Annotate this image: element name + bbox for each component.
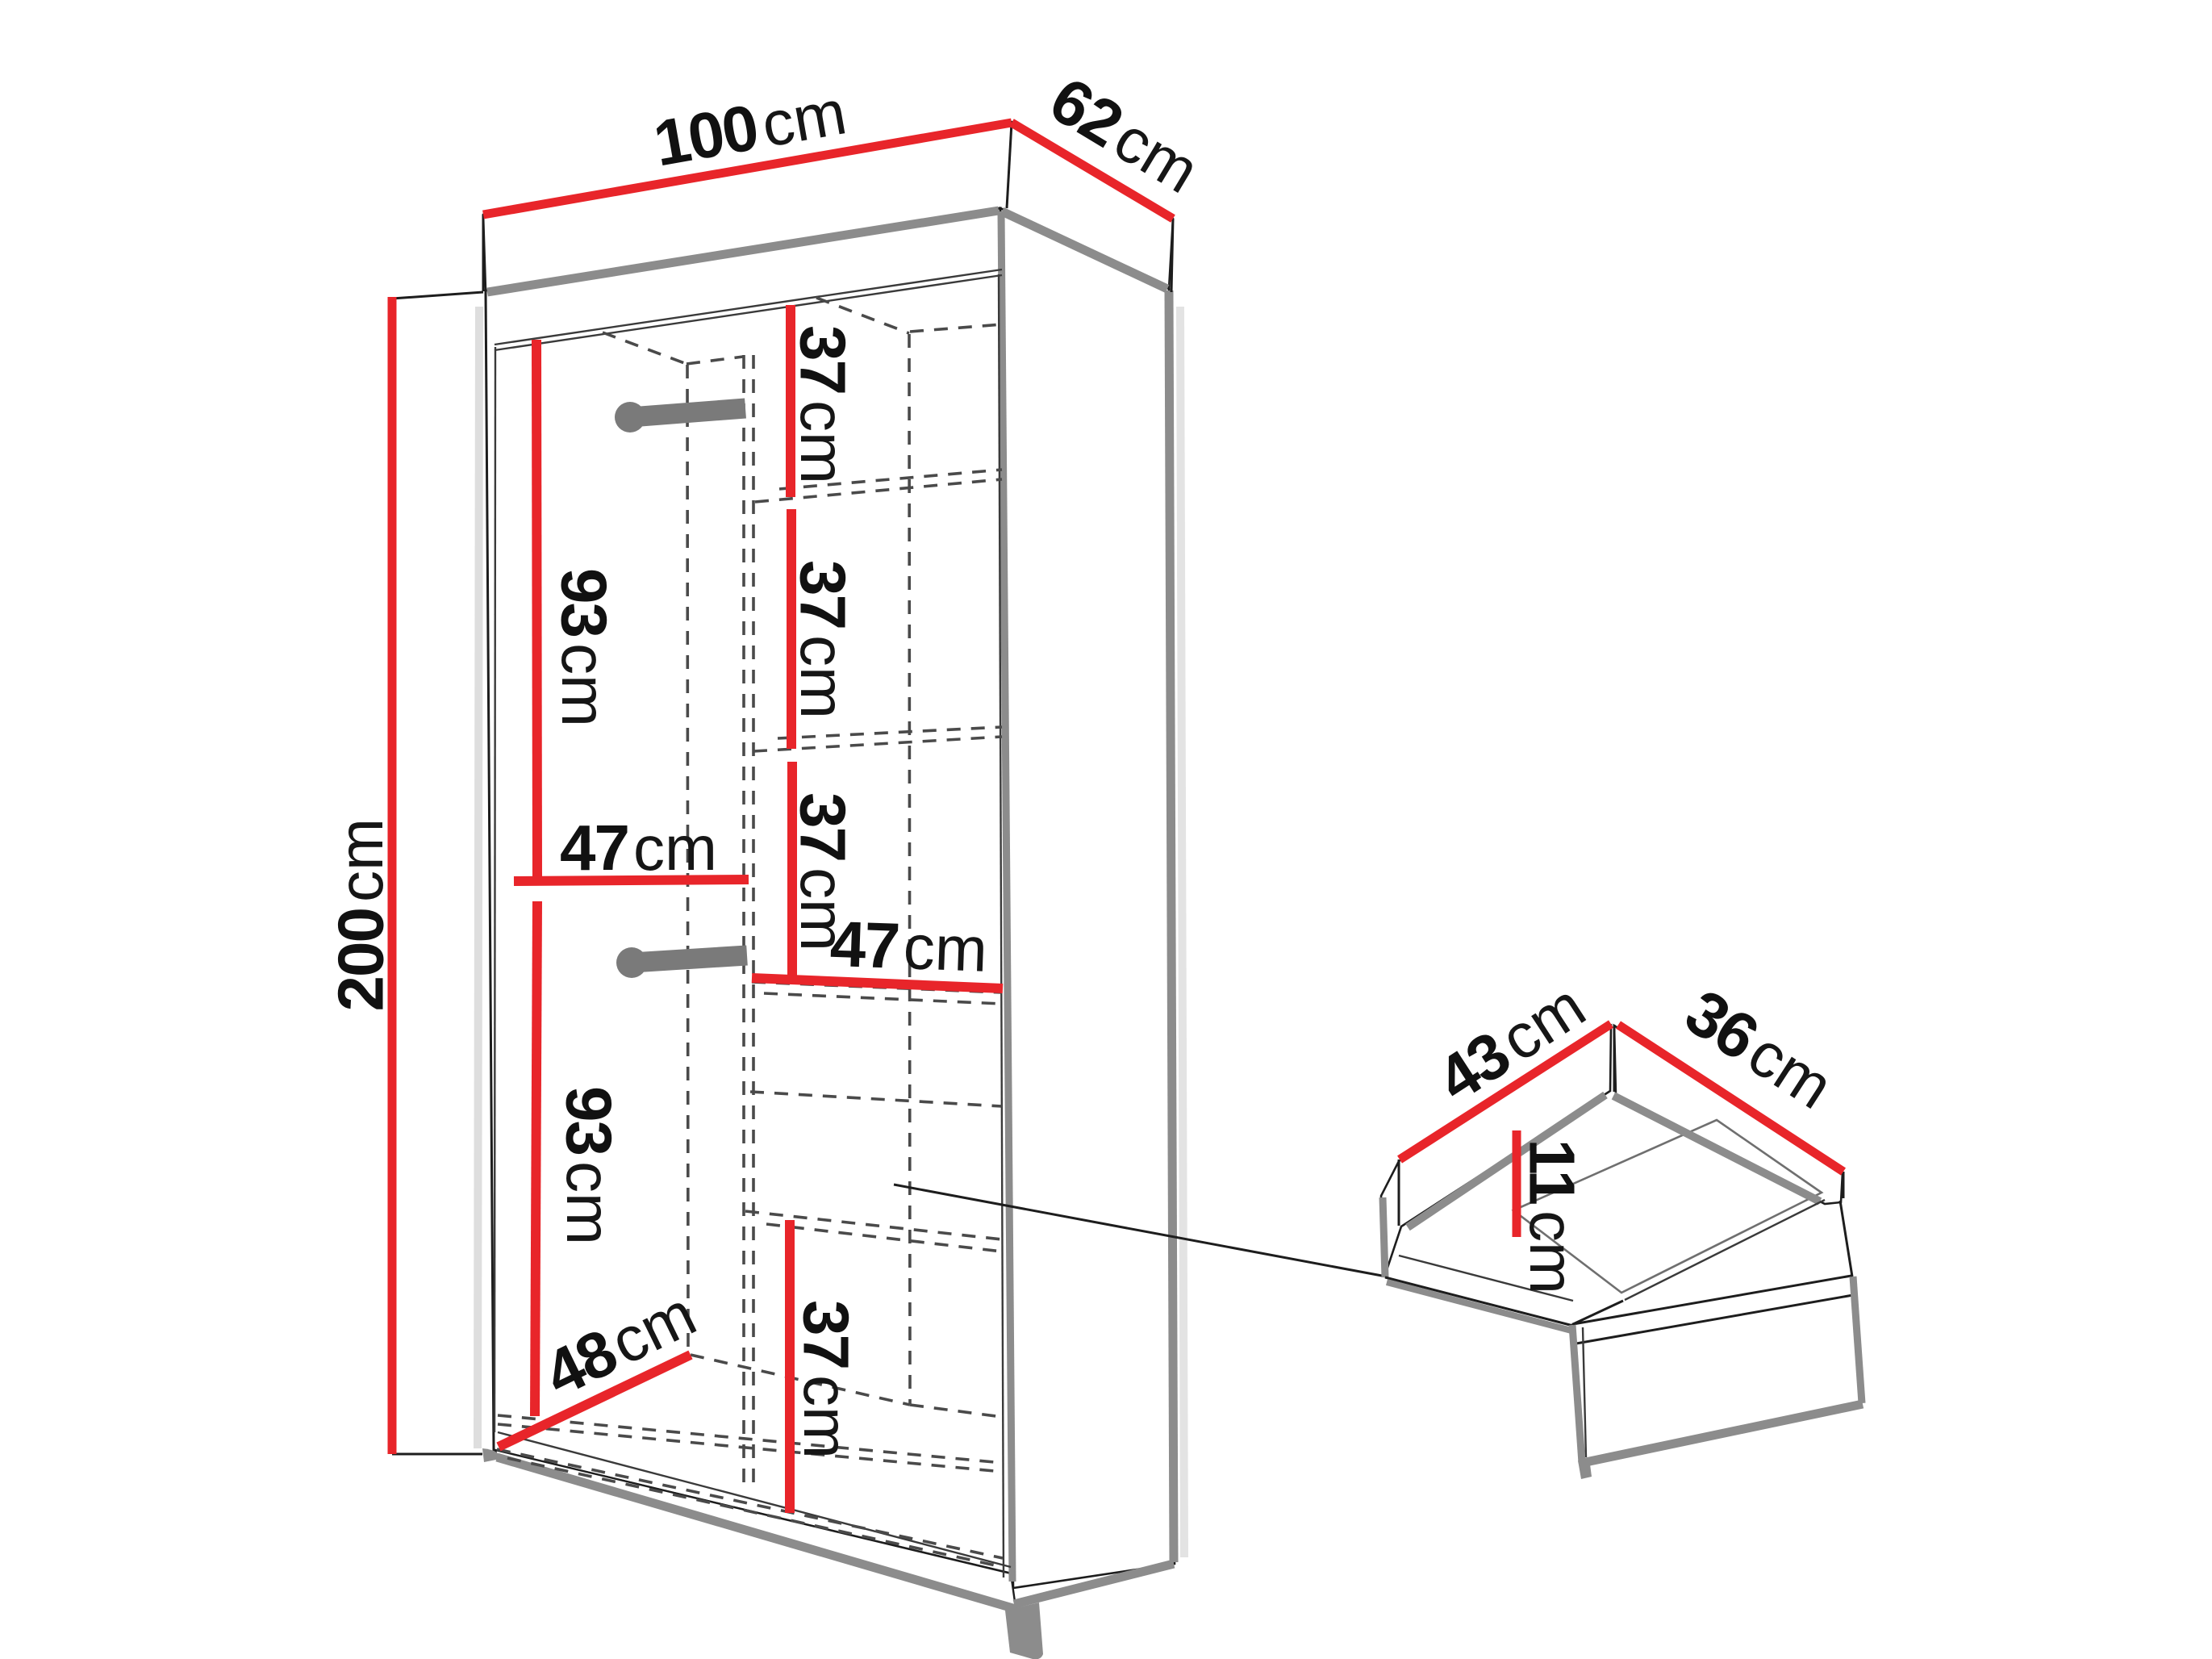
dim-unit: cm xyxy=(553,1161,624,1245)
dim-left-width-label: 47 cm xyxy=(560,812,717,884)
dim-value: 37 xyxy=(787,560,859,629)
dim-hang-upper-label: 93 cm xyxy=(549,568,620,727)
dim-value: 47 xyxy=(560,812,628,884)
dim-value: 11 xyxy=(1517,1139,1588,1204)
dim-value: 37 xyxy=(787,325,859,394)
dim-value: 47 xyxy=(828,908,899,982)
dim-value: 37 xyxy=(791,1300,862,1369)
drawer-foot xyxy=(1578,1458,1592,1479)
dim-right-width-label: 47 cm xyxy=(828,908,988,985)
wardrobe-technical-drawing: 100 cm 62 cm 200 cm 93 cm 93 cm 37 cm 37… xyxy=(0,0,2212,1659)
dim-unit: cm xyxy=(902,911,988,985)
dim-unit: cm xyxy=(787,400,858,484)
dim-value: 37 xyxy=(787,792,859,861)
dim-unit: cm xyxy=(1517,1210,1588,1294)
dim-value: 200 xyxy=(325,909,397,1011)
dim-drawer-height-label: 11 cm xyxy=(1517,1139,1588,1294)
dim-unit: cm xyxy=(791,1375,862,1459)
dim-unit: cm xyxy=(787,635,858,719)
dim-height-label: 200 cm xyxy=(325,818,397,1011)
dim-unit: cm xyxy=(549,643,620,727)
dim-hang-upper-line xyxy=(536,340,537,880)
side-panel xyxy=(1000,208,1175,1588)
dim-unit: cm xyxy=(325,818,396,902)
dim-unit: cm xyxy=(633,813,717,884)
dim-shelf-bottom-label: 37 cm xyxy=(791,1300,862,1459)
dim-unit: cm xyxy=(757,76,852,161)
dim-value: 93 xyxy=(553,1086,625,1155)
dim-hang-lower-line xyxy=(535,901,537,1416)
right-foot xyxy=(1005,1603,1043,1659)
dim-value: 93 xyxy=(549,568,620,637)
diagram-canvas: 100 cm 62 cm 200 cm 93 cm 93 cm 37 cm 37… xyxy=(0,0,2212,1659)
dim-shelf1-label: 37 cm xyxy=(787,325,859,484)
dim-shelf2-label: 37 cm xyxy=(787,560,859,719)
dim-hang-lower-label: 93 cm xyxy=(553,1086,625,1245)
